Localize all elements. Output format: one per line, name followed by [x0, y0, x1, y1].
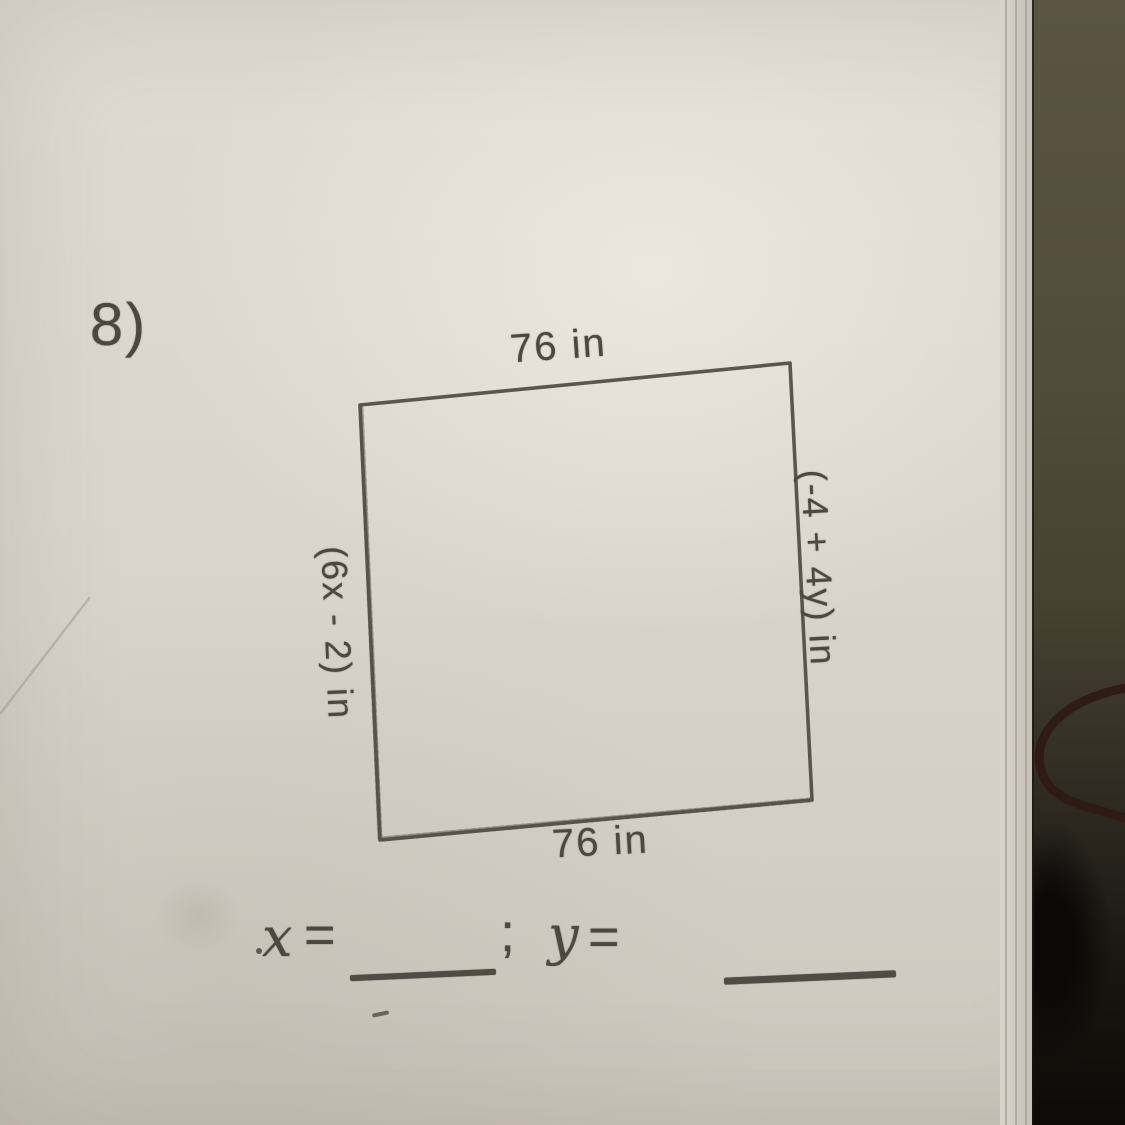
answer-y-equals-sign: =	[588, 906, 620, 968]
worksheet-photo: 8) 76 in 76 in (-4 + 4y) in (6x - 2) in …	[0, 0, 1125, 1125]
eraser-smudge	[156, 876, 240, 956]
top-side-length-label: 76 in	[509, 321, 609, 373]
problem-number: 8)	[89, 290, 148, 360]
answer-x-variable: x	[262, 906, 292, 969]
answer-separator-semicolon: ;	[500, 902, 515, 964]
answer-y-variable: y	[548, 904, 579, 967]
bottom-side-length-label: 76 in	[551, 817, 650, 867]
left-side-expression-label: (6x - 2) in	[312, 545, 362, 721]
rough-pencil-edge	[361, 408, 810, 839]
answer-x-equals-sign: =	[304, 904, 336, 966]
cable-curve	[1039, 688, 1125, 818]
quadrilateral-figure	[360, 363, 812, 840]
paper-crease	[0, 597, 90, 714]
